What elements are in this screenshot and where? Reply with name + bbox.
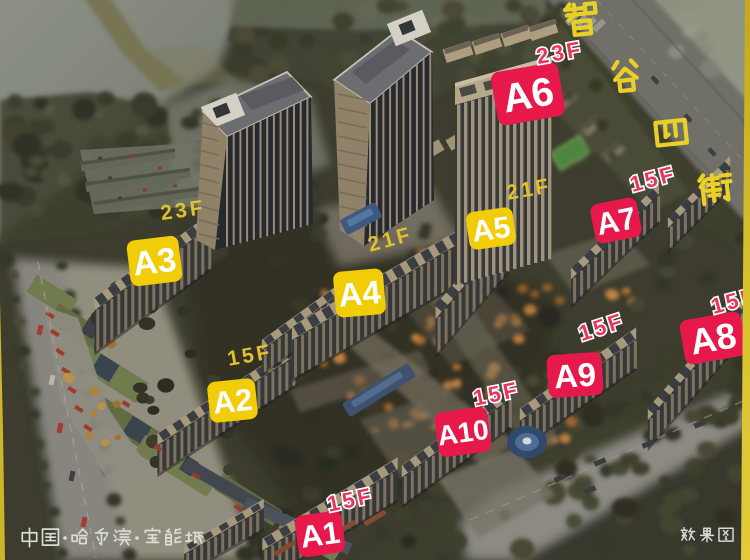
svg-text:A3: A3 <box>131 241 179 284</box>
svg-text:A1: A1 <box>298 515 342 555</box>
svg-text:A2: A2 <box>211 382 254 421</box>
svg-text:A5: A5 <box>470 211 513 249</box>
svg-text:A7: A7 <box>593 200 639 242</box>
svg-text:A8: A8 <box>687 314 739 362</box>
svg-text:A9: A9 <box>553 355 598 395</box>
svg-text:A6: A6 <box>499 69 557 121</box>
svg-text:A4: A4 <box>337 273 383 314</box>
